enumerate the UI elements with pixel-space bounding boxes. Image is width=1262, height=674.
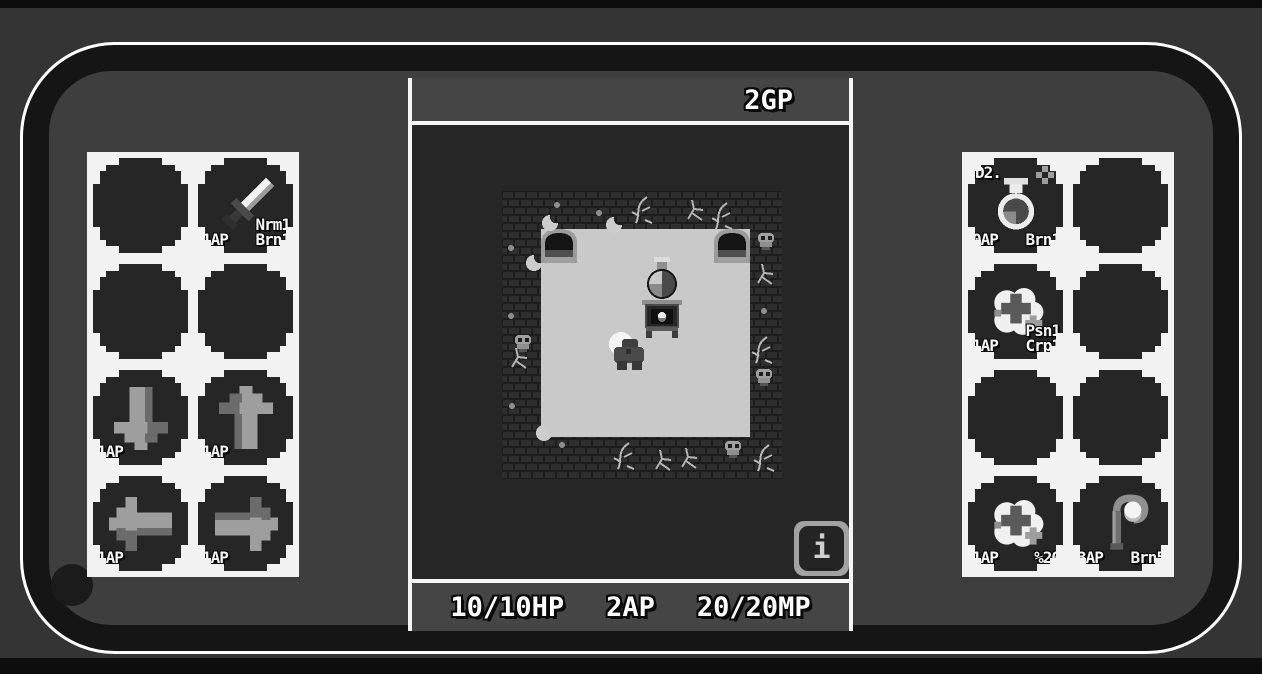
ap-cost-label: 1AP bbox=[97, 550, 123, 565]
left-action-panel: 1APNrm1 Brn11AP1AP1AP1AP bbox=[87, 152, 299, 577]
ap-cost-label: 3AP bbox=[1077, 550, 1103, 565]
letterbox-top bbox=[0, 0, 1262, 8]
gold-amount: 2GP bbox=[744, 87, 793, 114]
hp-stat: 10/10HP bbox=[450, 594, 564, 621]
letterbox-bottom bbox=[0, 658, 1262, 674]
ap-stat: 2AP bbox=[606, 594, 655, 621]
ap-cost-label: 1AP bbox=[202, 444, 228, 459]
slot-arrow-left[interactable]: 1AP bbox=[93, 476, 188, 571]
game-column: 2GP bbox=[408, 78, 853, 631]
slot-potion[interactable]: D2.0APBrn1 bbox=[968, 158, 1063, 253]
slot-heal-cloud[interactable]: 1APPsn1 Crp1 bbox=[968, 264, 1063, 359]
ap-cost-label: 1AP bbox=[202, 550, 228, 565]
dungeon-map bbox=[502, 191, 782, 479]
slot-heal-cloud[interactable]: 1AP%20 bbox=[968, 476, 1063, 571]
slot-empty bbox=[93, 264, 188, 359]
stats-bar: 10/10HP 2AP 20/20MP bbox=[412, 583, 849, 631]
effect-label: %20 bbox=[1034, 550, 1060, 565]
slot-empty bbox=[1073, 264, 1168, 359]
modifier-label: D2. bbox=[975, 165, 1001, 180]
slot-empty bbox=[93, 158, 188, 253]
info-button[interactable]: i bbox=[794, 521, 849, 576]
effect-label: Brn1 bbox=[1025, 232, 1060, 247]
sparkle-icon bbox=[1036, 166, 1054, 188]
ap-cost-label: 1AP bbox=[97, 444, 123, 459]
ap-cost-label: 1AP bbox=[972, 550, 998, 565]
arch-left bbox=[541, 229, 577, 263]
right-action-panel: D2.0APBrn11APPsn1 Crp11AP%203APBrn5 bbox=[962, 152, 1174, 577]
arch-right bbox=[714, 229, 750, 263]
slot-arrow-up[interactable]: 1AP bbox=[198, 370, 293, 465]
ap-cost-label: 1AP bbox=[202, 232, 228, 247]
effect-label: Nrm1 Brn1 bbox=[255, 217, 290, 247]
slot-staff[interactable]: 3APBrn5 bbox=[1073, 476, 1168, 571]
slot-empty bbox=[1073, 370, 1168, 465]
slot-sword[interactable]: 1APNrm1 Brn1 bbox=[198, 158, 293, 253]
ap-cost-label: 0AP bbox=[972, 232, 998, 247]
slot-empty bbox=[968, 370, 1063, 465]
stage: 1APNrm1 Brn11AP1AP1AP1AP 2GP bbox=[0, 0, 1262, 674]
effect-label: Brn5 bbox=[1130, 550, 1165, 565]
ap-cost-label: 1AP bbox=[972, 338, 998, 353]
effect-label: Psn1 Crp1 bbox=[1025, 323, 1060, 353]
mp-stat: 20/20MP bbox=[697, 594, 811, 621]
slot-empty bbox=[198, 264, 293, 359]
game-viewport[interactable]: i bbox=[412, 125, 849, 579]
slot-arrow-right[interactable]: 1AP bbox=[198, 476, 293, 571]
slot-empty bbox=[1073, 158, 1168, 253]
gold-bar: 2GP bbox=[412, 78, 849, 121]
slot-arrow-down[interactable]: 1AP bbox=[93, 370, 188, 465]
info-icon: i bbox=[812, 531, 830, 566]
